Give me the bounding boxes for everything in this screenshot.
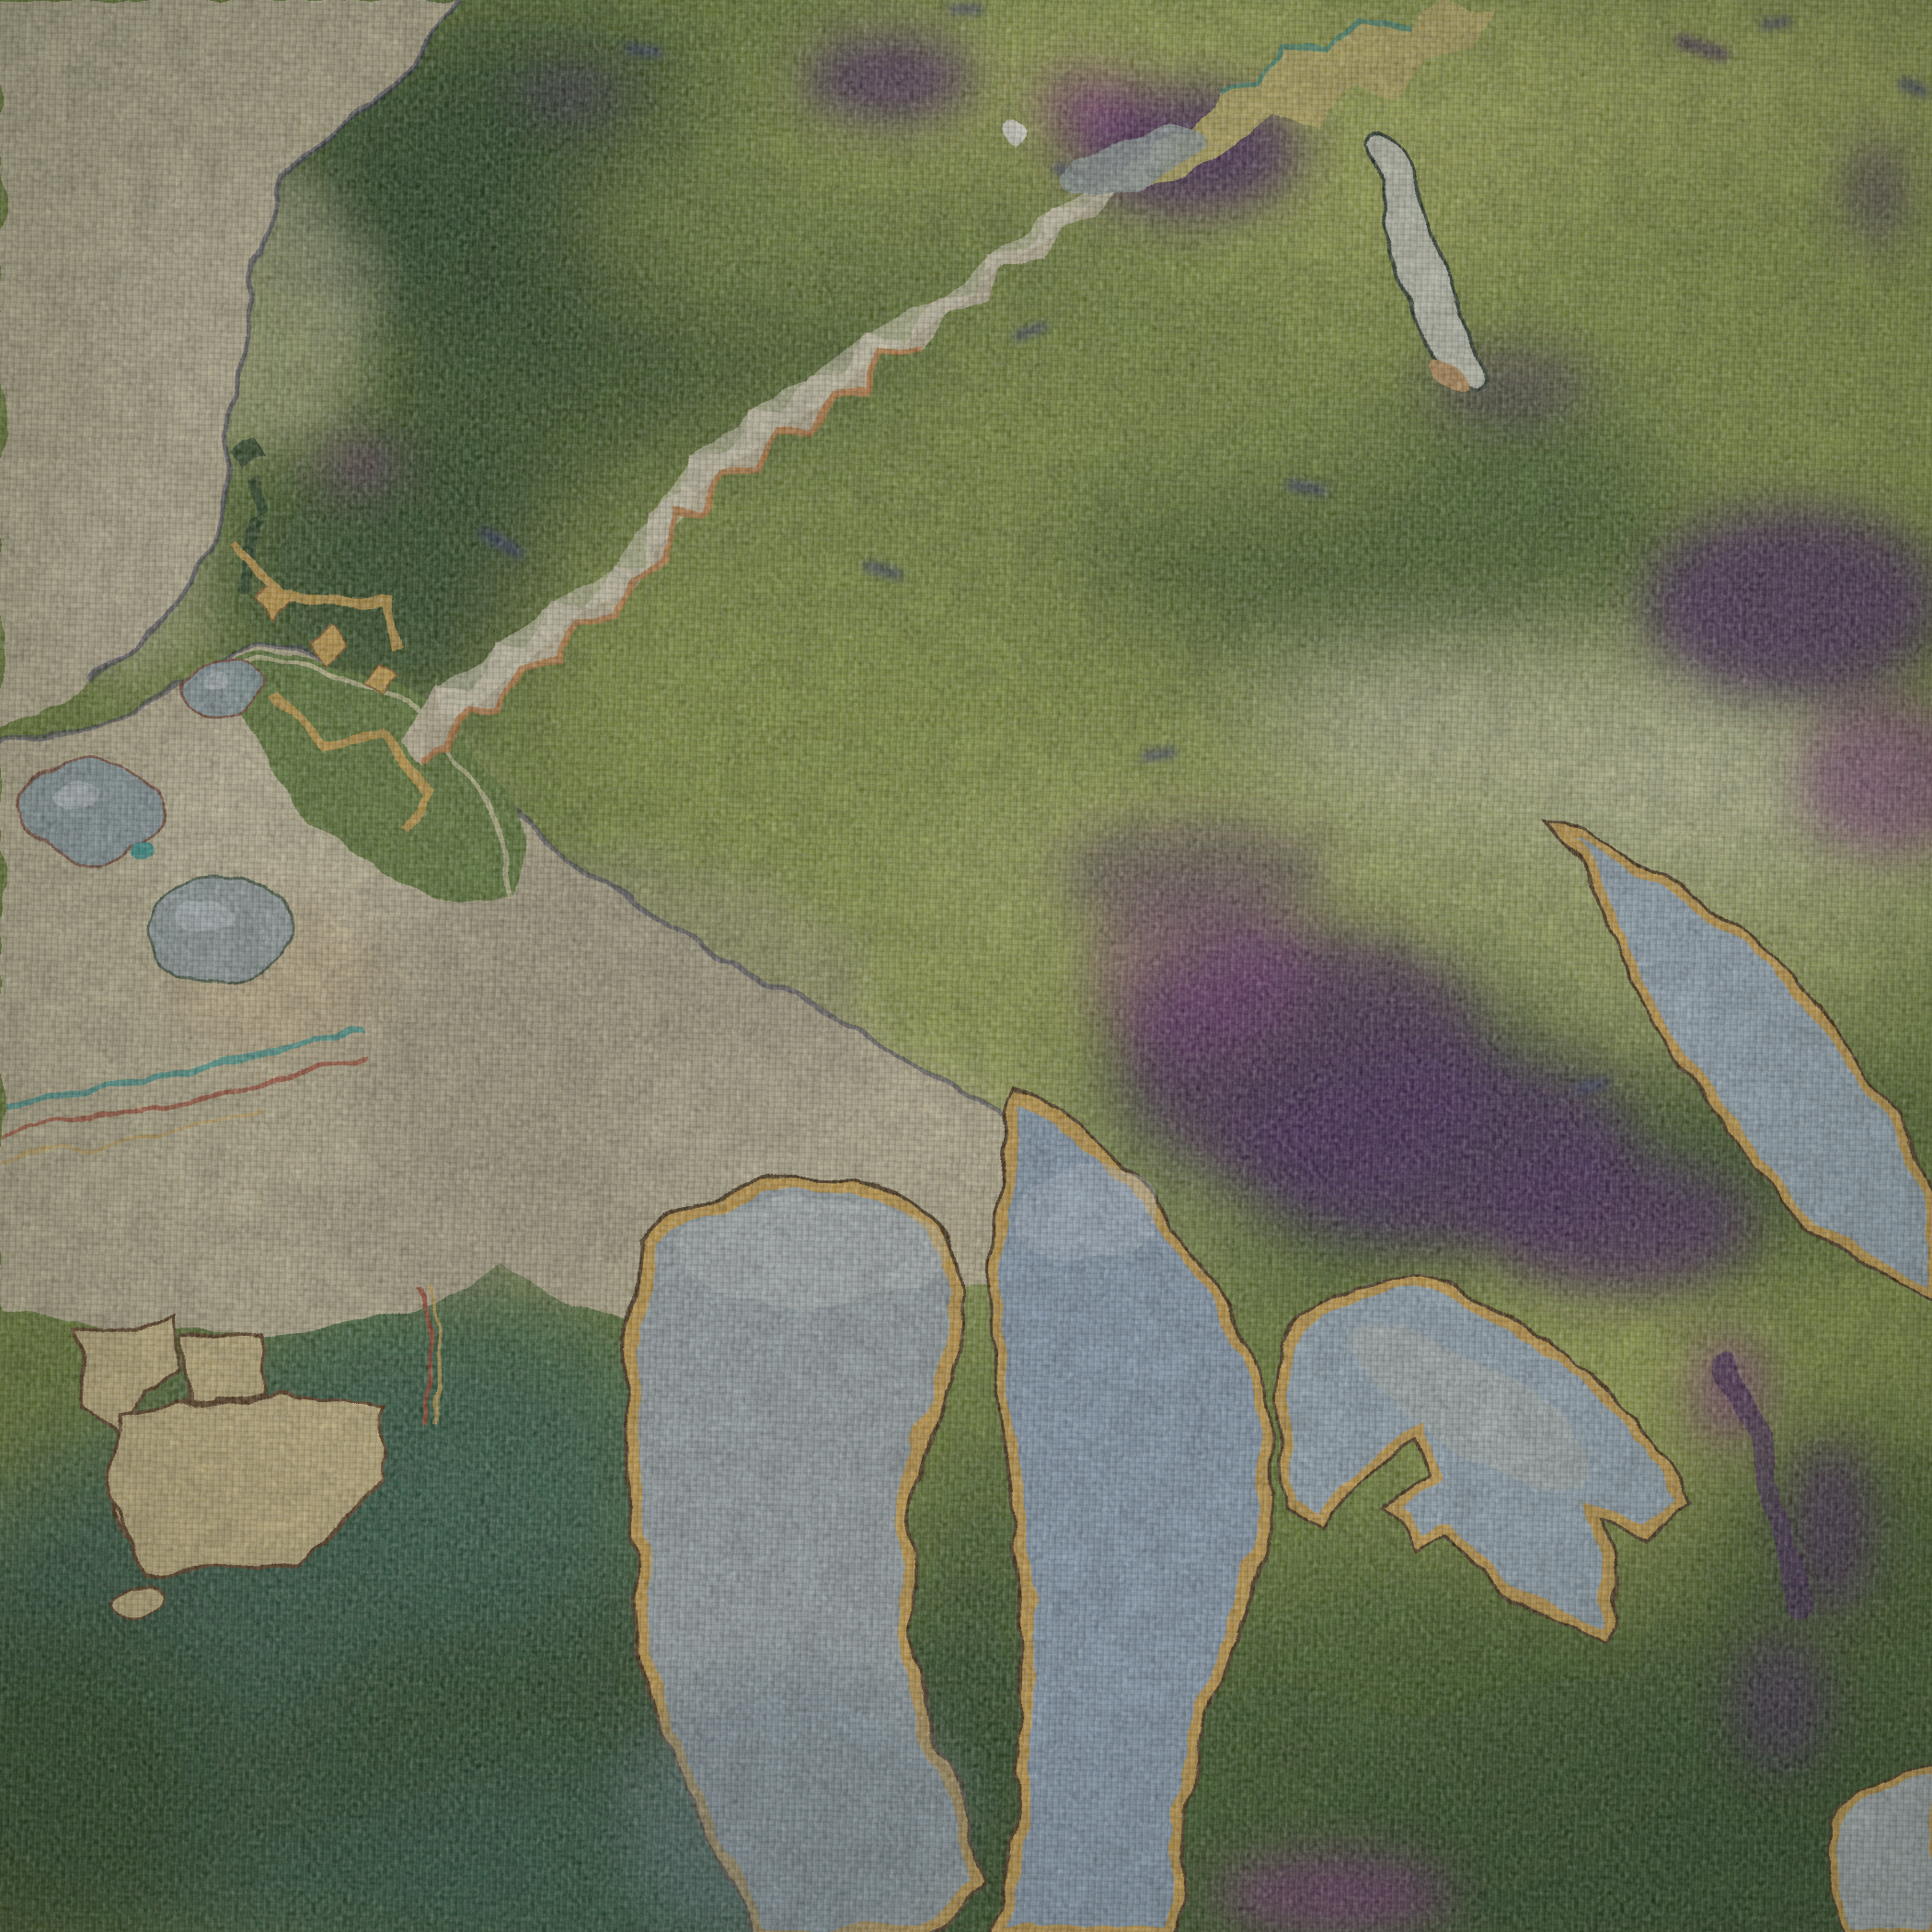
tapestry-canvas bbox=[0, 0, 1932, 1932]
tapestry-photo: Extreme close-up photograph of a woven t… bbox=[0, 0, 1932, 1932]
light-speckle-overlay bbox=[0, 0, 1932, 1932]
